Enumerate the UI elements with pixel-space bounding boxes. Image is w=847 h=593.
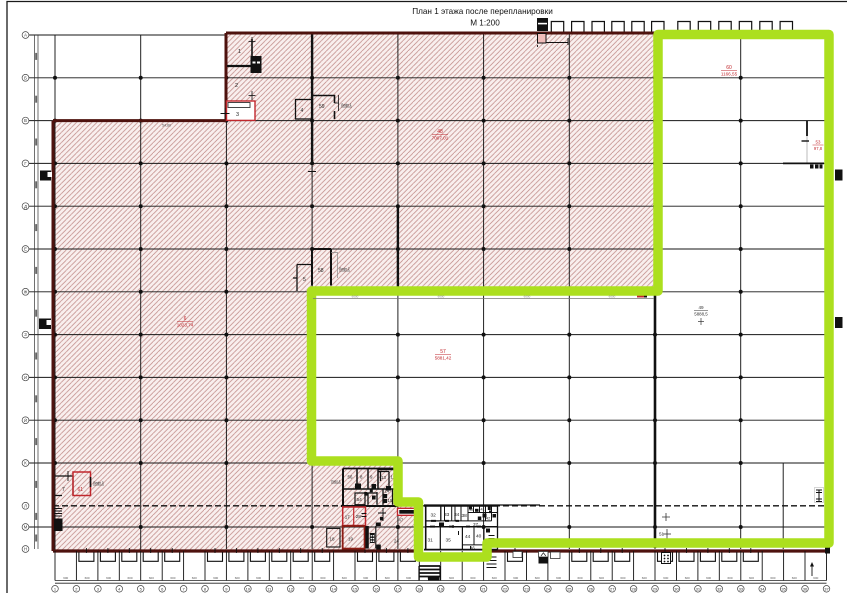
svg-text:13: 13 bbox=[310, 586, 315, 591]
svg-text:34: 34 bbox=[760, 586, 765, 591]
svg-text:28: 28 bbox=[356, 514, 362, 519]
svg-text:Б: Б bbox=[24, 75, 27, 80]
svg-text:600: 600 bbox=[599, 576, 604, 580]
svg-text:600: 600 bbox=[170, 576, 175, 580]
svg-text:Н: Н bbox=[24, 547, 27, 552]
svg-text:6000: 6000 bbox=[438, 295, 445, 299]
svg-text:34: 34 bbox=[454, 512, 460, 518]
svg-text:600: 600 bbox=[63, 576, 68, 580]
svg-text:41: 41 bbox=[481, 508, 485, 512]
svg-text:10: 10 bbox=[246, 586, 251, 591]
svg-text:15: 15 bbox=[353, 586, 358, 591]
svg-text:600: 600 bbox=[749, 576, 754, 580]
svg-text:600: 600 bbox=[556, 576, 561, 580]
svg-text:97,8: 97,8 bbox=[814, 146, 823, 151]
svg-text:600: 600 bbox=[342, 576, 347, 580]
svg-text:31: 31 bbox=[428, 538, 434, 544]
svg-text:27: 27 bbox=[610, 586, 615, 591]
svg-text:И: И bbox=[24, 375, 27, 380]
svg-text:600: 600 bbox=[106, 576, 111, 580]
svg-text:6000: 6000 bbox=[352, 295, 359, 299]
svg-text:54: 54 bbox=[357, 497, 363, 503]
svg-text:37: 37 bbox=[824, 586, 829, 591]
svg-text:6000: 6000 bbox=[524, 295, 531, 299]
svg-text:20: 20 bbox=[460, 586, 465, 591]
svg-text:600: 600 bbox=[685, 576, 690, 580]
svg-text:40: 40 bbox=[476, 534, 482, 540]
svg-text:15: 15 bbox=[388, 498, 393, 503]
svg-text:Лифт 3: Лифт 3 bbox=[93, 481, 104, 485]
svg-text:600: 600 bbox=[813, 576, 818, 580]
svg-text:600: 600 bbox=[727, 576, 732, 580]
svg-text:Ж: Ж bbox=[24, 289, 28, 294]
svg-text:7: 7 bbox=[62, 487, 65, 493]
svg-text:56: 56 bbox=[348, 475, 353, 480]
svg-text:600: 600 bbox=[706, 576, 711, 580]
svg-text:600: 600 bbox=[385, 576, 390, 580]
svg-text:58: 58 bbox=[318, 268, 324, 274]
svg-text:47: 47 bbox=[399, 518, 404, 523]
svg-text:42: 42 bbox=[486, 517, 490, 521]
svg-text:600: 600 bbox=[406, 576, 411, 580]
svg-text:21: 21 bbox=[481, 586, 486, 591]
svg-text:600: 600 bbox=[256, 576, 261, 580]
svg-text:53: 53 bbox=[816, 140, 821, 145]
svg-text:Лифт 1: Лифт 1 bbox=[341, 103, 352, 107]
svg-text:600: 600 bbox=[620, 576, 625, 580]
svg-text:600: 600 bbox=[792, 576, 797, 580]
svg-text:Лифт 2: Лифт 2 bbox=[339, 267, 350, 271]
svg-text:600: 600 bbox=[535, 576, 540, 580]
svg-text:23: 23 bbox=[524, 586, 529, 591]
svg-text:М 1:200: М 1:200 bbox=[470, 19, 500, 28]
svg-text:6: 6 bbox=[184, 316, 187, 322]
svg-text:600: 600 bbox=[470, 576, 475, 580]
svg-text:18: 18 bbox=[330, 537, 336, 542]
svg-text:61: 61 bbox=[78, 487, 84, 493]
svg-text:600: 600 bbox=[577, 576, 582, 580]
svg-text:600: 600 bbox=[770, 576, 775, 580]
svg-text:План 1 этажа после перепланиро: План 1 этажа после перепланировки bbox=[412, 7, 553, 16]
svg-text:35: 35 bbox=[446, 538, 452, 544]
svg-text:16: 16 bbox=[374, 586, 379, 591]
svg-text:36: 36 bbox=[803, 586, 808, 591]
svg-text:22: 22 bbox=[503, 586, 508, 591]
svg-text:17: 17 bbox=[345, 515, 351, 520]
svg-text:28: 28 bbox=[631, 586, 636, 591]
svg-text:3: 3 bbox=[236, 112, 239, 118]
svg-text:600: 600 bbox=[127, 576, 132, 580]
svg-text:32: 32 bbox=[431, 513, 437, 519]
svg-text:12: 12 bbox=[288, 586, 293, 591]
svg-text:35: 35 bbox=[781, 586, 786, 591]
svg-text:600: 600 bbox=[235, 576, 240, 580]
svg-text:4: 4 bbox=[301, 108, 304, 114]
svg-text:14: 14 bbox=[331, 586, 336, 591]
svg-text:1023,74: 1023,74 bbox=[177, 323, 194, 328]
svg-text:600: 600 bbox=[213, 576, 218, 580]
svg-text:Й: Й bbox=[24, 418, 27, 423]
svg-text:48: 48 bbox=[437, 129, 443, 135]
svg-text:Д: Д bbox=[24, 204, 27, 209]
svg-text:600: 600 bbox=[85, 576, 90, 580]
svg-text:57: 57 bbox=[440, 349, 446, 355]
svg-text:5888,5: 5888,5 bbox=[694, 312, 708, 317]
svg-text:25: 25 bbox=[567, 586, 572, 591]
svg-text:2: 2 bbox=[235, 83, 238, 89]
svg-text:1166,55: 1166,55 bbox=[721, 72, 738, 77]
svg-text:600: 600 bbox=[192, 576, 197, 580]
svg-text:18: 18 bbox=[417, 586, 422, 591]
svg-text:30: 30 bbox=[674, 586, 679, 591]
svg-text:17: 17 bbox=[396, 586, 401, 591]
svg-text:19: 19 bbox=[438, 586, 443, 591]
svg-text:19: 19 bbox=[348, 537, 354, 542]
svg-text:49: 49 bbox=[698, 305, 704, 310]
svg-text:600: 600 bbox=[277, 576, 282, 580]
svg-text:600: 600 bbox=[513, 576, 518, 580]
svg-text:600: 600 bbox=[299, 576, 304, 580]
svg-text:600: 600 bbox=[642, 576, 647, 580]
svg-text:14: 14 bbox=[385, 489, 390, 494]
svg-text:600: 600 bbox=[449, 576, 454, 580]
svg-text:6000: 6000 bbox=[609, 295, 616, 299]
svg-text:600: 600 bbox=[663, 576, 668, 580]
svg-text:600: 600 bbox=[492, 576, 497, 580]
svg-text:54,80: 54,80 bbox=[162, 124, 171, 128]
svg-text:31: 31 bbox=[696, 586, 701, 591]
svg-text:Е: Е bbox=[24, 247, 27, 252]
svg-text:32: 32 bbox=[717, 586, 722, 591]
svg-text:13: 13 bbox=[381, 475, 386, 480]
svg-text:600: 600 bbox=[149, 576, 154, 580]
svg-text:А: А bbox=[24, 33, 27, 38]
svg-text:1: 1 bbox=[238, 49, 241, 55]
svg-text:26: 26 bbox=[589, 586, 594, 591]
svg-text:33: 33 bbox=[444, 512, 450, 518]
svg-text:5881,42: 5881,42 bbox=[435, 356, 452, 361]
svg-text:39: 39 bbox=[470, 508, 474, 512]
svg-text:600: 600 bbox=[320, 576, 325, 580]
svg-text:М: М bbox=[24, 525, 28, 530]
svg-text:24: 24 bbox=[546, 586, 551, 591]
svg-text:60: 60 bbox=[726, 65, 732, 71]
svg-text:Л: Л bbox=[24, 503, 27, 508]
svg-text:29: 29 bbox=[653, 586, 658, 591]
svg-text:33: 33 bbox=[739, 586, 744, 591]
svg-text:7007,01: 7007,01 bbox=[432, 136, 449, 141]
svg-text:38: 38 bbox=[462, 513, 468, 519]
svg-text:44: 44 bbox=[465, 534, 471, 540]
svg-text:5: 5 bbox=[303, 277, 306, 283]
svg-text:В: В bbox=[24, 118, 27, 123]
svg-text:Лифт 4: Лифт 4 bbox=[331, 479, 341, 483]
svg-text:24: 24 bbox=[394, 539, 399, 544]
svg-text:59: 59 bbox=[319, 104, 325, 110]
svg-text:600: 600 bbox=[363, 576, 368, 580]
